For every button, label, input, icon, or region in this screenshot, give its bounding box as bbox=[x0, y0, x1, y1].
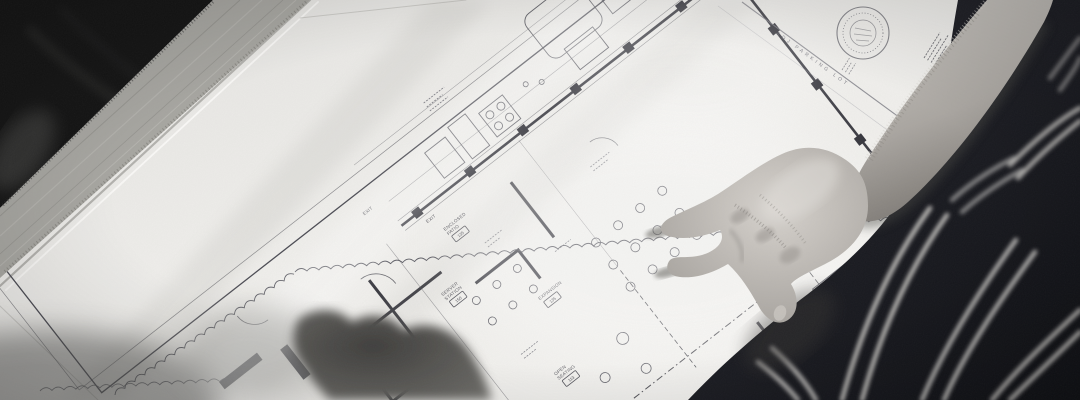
photo-blueprint-scene: SERVER STATION 150 ENCLOSED PATIO 135 OP… bbox=[0, 0, 1080, 400]
photo-canvas: SERVER STATION 150 ENCLOSED PATIO 135 OP… bbox=[0, 0, 1080, 400]
film-grain bbox=[0, 0, 1080, 400]
